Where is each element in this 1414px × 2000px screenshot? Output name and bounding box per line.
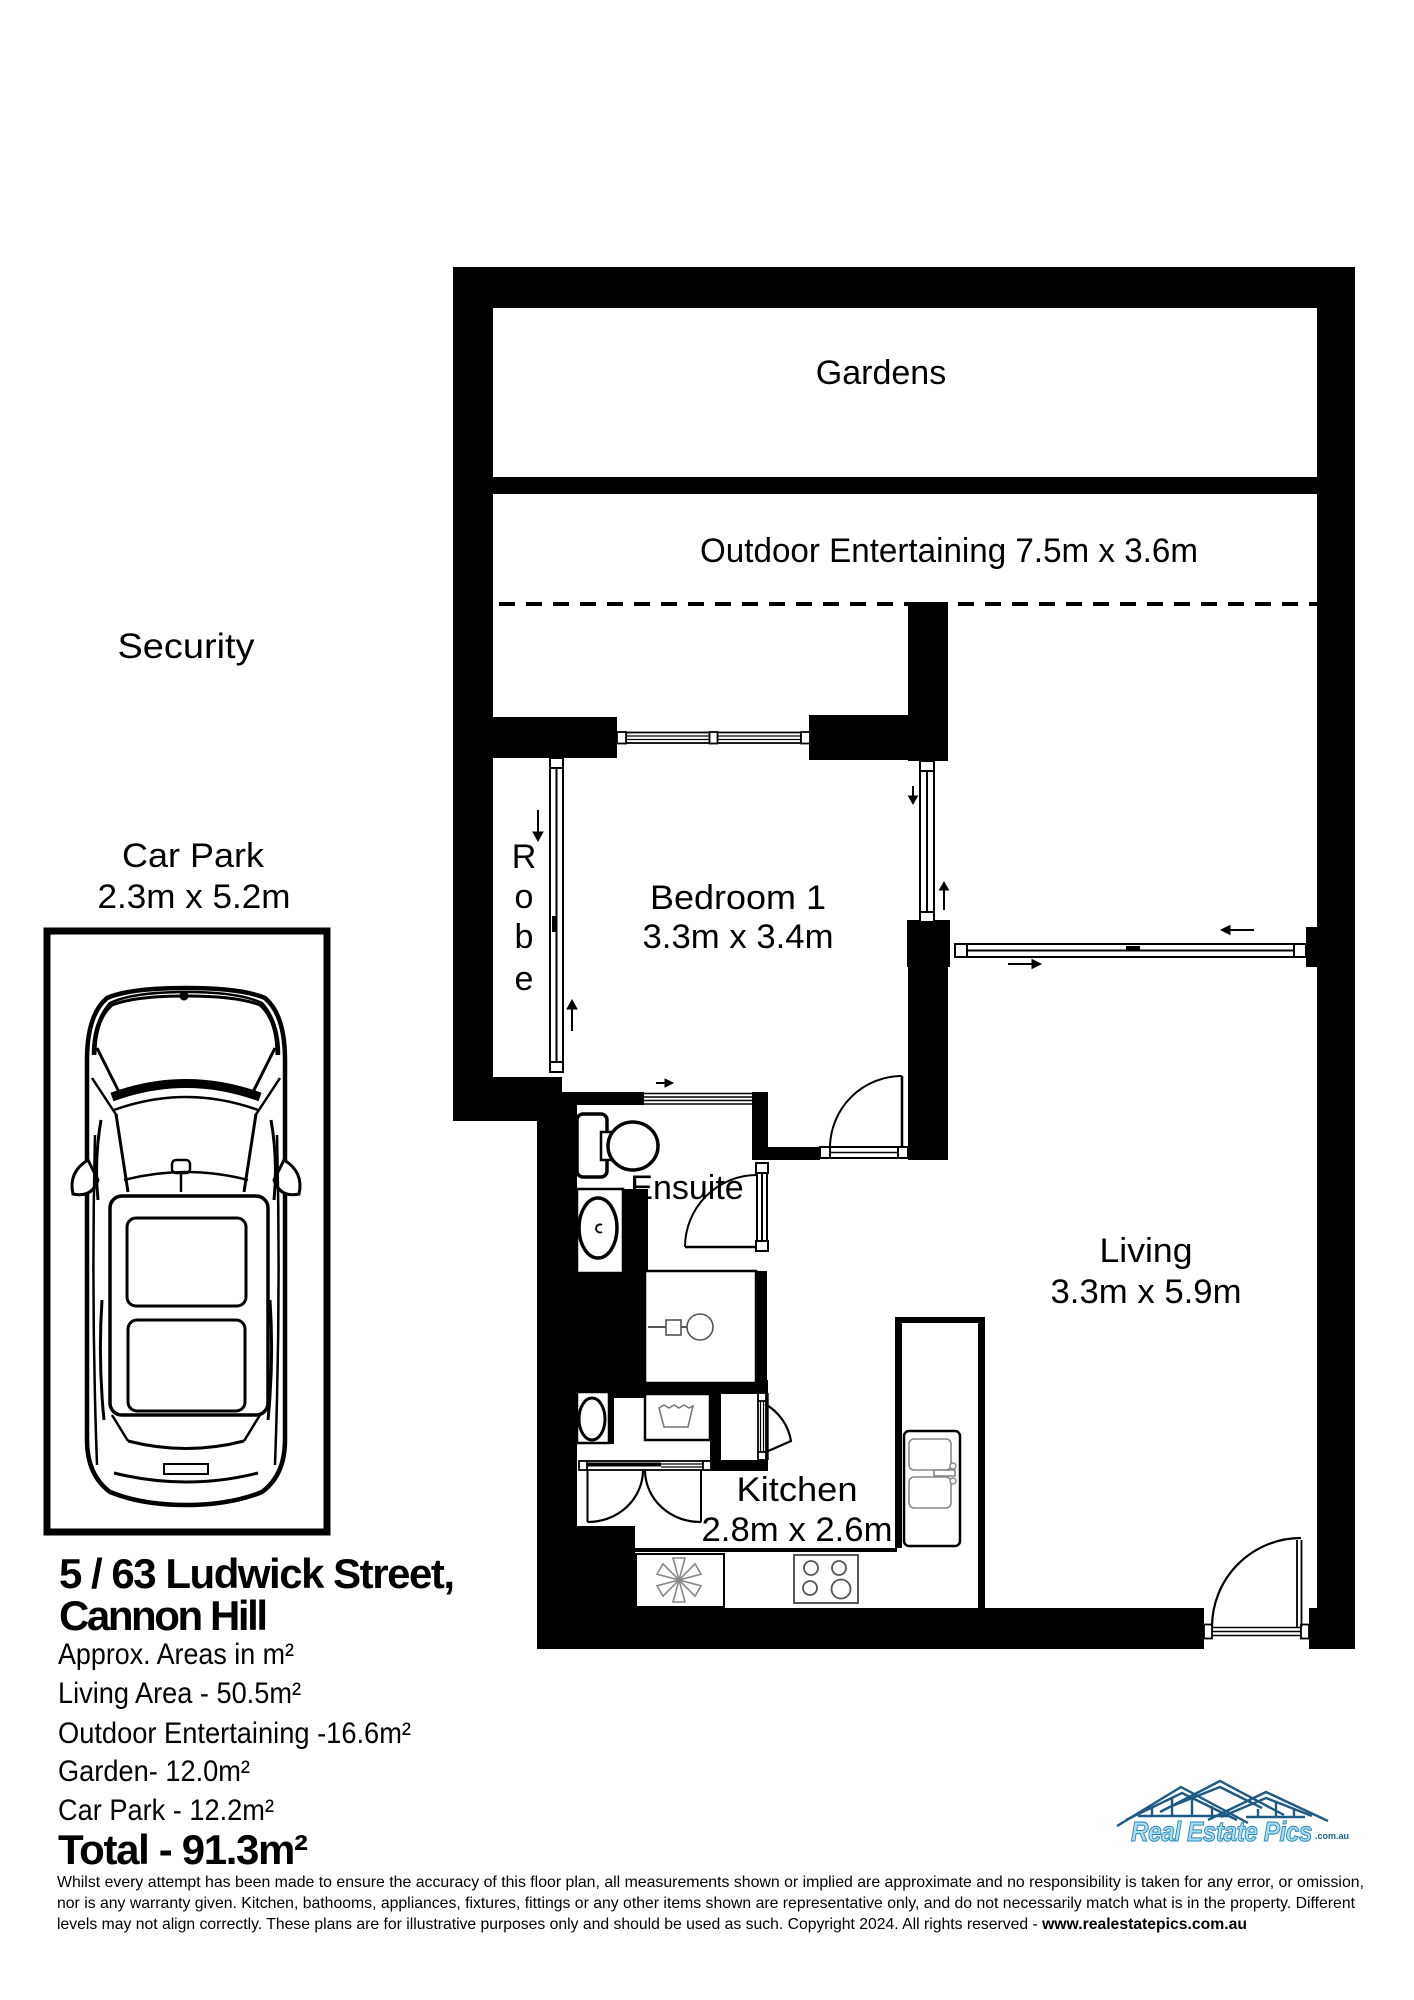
svg-text:Cannon Hill: Cannon Hill <box>59 1592 268 1639</box>
svg-text:levels may not align correctly: levels may not align correctly. These pl… <box>57 1916 1247 1933</box>
svg-text:Security: Security <box>118 627 256 666</box>
svg-text:R: R <box>512 838 537 876</box>
svg-text:Approx. Areas in m²: Approx. Areas in m² <box>58 1638 294 1671</box>
svg-text:e: e <box>515 960 534 998</box>
svg-text:3.3m x 3.4m: 3.3m x 3.4m <box>643 918 834 956</box>
svg-text:Garden- 12.0m²: Garden- 12.0m² <box>58 1755 250 1788</box>
svg-text:Outdoor Entertaining -16.6m²: Outdoor Entertaining -16.6m² <box>58 1717 411 1750</box>
svg-text:Total - 91.3m²: Total - 91.3m² <box>58 1826 308 1873</box>
svg-text:b: b <box>515 918 534 956</box>
svg-text:2.3m x 5.2m: 2.3m x 5.2m <box>98 878 291 916</box>
svg-text:nor is any warranty given. Ki: nor is any warranty given. Kitchen, bath… <box>57 1895 1356 1912</box>
svg-text:Car Park - 12.2m²: Car Park - 12.2m² <box>58 1794 274 1827</box>
svg-text:3.3m x 5.9m: 3.3m x 5.9m <box>1051 1273 1242 1311</box>
svg-text:Living: Living <box>1100 1232 1193 1270</box>
svg-text:Outdoor Entertaining 7.5m x 3.: Outdoor Entertaining 7.5m x 3.6m <box>700 532 1198 570</box>
svg-text:Bedroom 1: Bedroom 1 <box>650 879 826 917</box>
svg-text:2.8m x 2.6m: 2.8m x 2.6m <box>702 1511 893 1549</box>
svg-text:Ensuite: Ensuite <box>630 1169 743 1207</box>
svg-text:Real Estate Pics: Real Estate Pics <box>1131 1816 1312 1847</box>
svg-text:o: o <box>515 878 534 916</box>
svg-text:Gardens: Gardens <box>816 354 946 392</box>
svg-text:Living Area - 50.5m²: Living Area - 50.5m² <box>58 1677 301 1710</box>
svg-text:Car Park: Car Park <box>122 837 265 875</box>
svg-text:5 / 63 Ludwick Street,: 5 / 63 Ludwick Street, <box>59 1550 455 1597</box>
svg-text:Kitchen: Kitchen <box>737 1471 858 1509</box>
svg-text:Whilst every attempt has been: Whilst every attempt has been made to en… <box>57 1874 1364 1891</box>
svg-text:.com.au: .com.au <box>1315 1831 1349 1841</box>
